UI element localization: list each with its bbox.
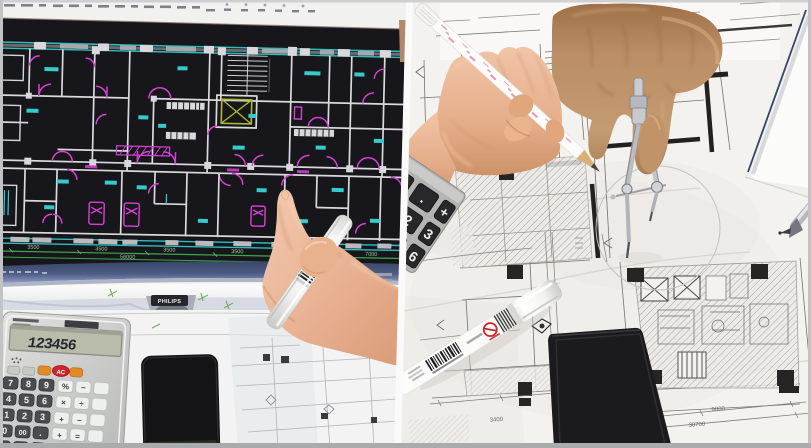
- svg-text:2: 2: [22, 411, 28, 421]
- svg-text:00: 00: [18, 430, 26, 437]
- svg-text:9000: 9000: [711, 406, 725, 413]
- svg-text:8: 8: [26, 379, 32, 389]
- svg-text:3500: 3500: [163, 247, 175, 253]
- svg-text:3500: 3500: [231, 249, 243, 255]
- svg-text:7: 7: [8, 378, 14, 388]
- svg-text:5: 5: [24, 395, 30, 405]
- svg-text:30700: 30700: [688, 422, 706, 429]
- svg-text:=: =: [75, 432, 81, 441]
- svg-text:−: −: [77, 416, 83, 425]
- svg-text:4: 4: [6, 394, 12, 404]
- svg-text:PHILIPS: PHILIPS: [158, 299, 182, 305]
- svg-text:3: 3: [40, 412, 46, 422]
- svg-text:9: 9: [44, 380, 50, 390]
- svg-text:3400: 3400: [490, 417, 504, 424]
- svg-text:3500: 3500: [27, 245, 39, 251]
- svg-text:7000: 7000: [365, 252, 377, 258]
- svg-text:1: 1: [4, 410, 10, 420]
- svg-text:−: −: [81, 383, 87, 392]
- svg-text:56000: 56000: [120, 254, 135, 260]
- svg-text:%: %: [62, 382, 70, 391]
- svg-text:AC: AC: [56, 370, 66, 377]
- svg-text:×: ×: [61, 398, 67, 407]
- svg-text:6: 6: [42, 396, 48, 406]
- svg-text:+: +: [59, 415, 65, 424]
- svg-text:+: +: [57, 431, 63, 440]
- svg-text:123456: 123456: [26, 334, 78, 355]
- svg-text:3500: 3500: [95, 246, 107, 252]
